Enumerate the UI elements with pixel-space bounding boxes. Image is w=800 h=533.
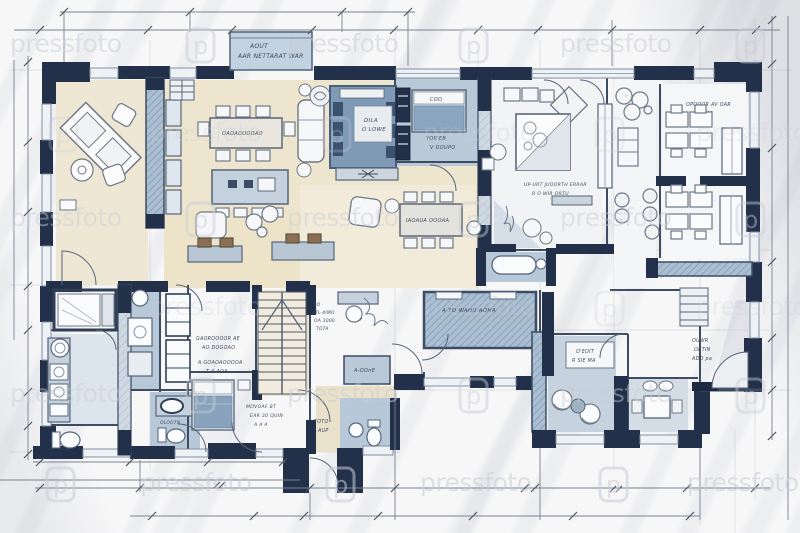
hall-right-label-1: OUWR [692, 338, 709, 344]
watermark-text: pressfoto [10, 379, 122, 408]
guest-pillow-label: COO [430, 97, 442, 103]
watermark-text: pressfoto [287, 379, 399, 408]
master-label-1: UP-URT JUOORTH ERRAR [524, 182, 587, 188]
watermark-logo-letter: p [743, 206, 758, 234]
floor-plan-sheet: A TO WAHU AOHA [0, 0, 800, 533]
desk-note-2: ATL-4IMO [311, 310, 335, 316]
sitting-nook-label-2: R SIE MA [572, 358, 596, 364]
watermark-text: pressfoto [696, 118, 800, 147]
desk-note-4: TOTA [316, 326, 329, 332]
watermark-text: pressfoto [560, 379, 672, 408]
hall-right-label-3: ADO pa [691, 356, 712, 362]
master-label-2: R O WIR ORTU [532, 191, 569, 197]
hall-labels: GAOROOOOR AE AO DOGOAO A GOAOAOOOOA T A … [196, 336, 243, 375]
bedroom-small-label-2: EAR 30 QUIN [250, 413, 283, 419]
watermark-logo-letter: p [193, 206, 208, 234]
watermark-text: pressfoto [287, 29, 399, 58]
bath-left-label: OLOOTN [160, 420, 181, 426]
watermark-logo-letter: p [743, 32, 758, 60]
rug-label-2: O LOWE [362, 127, 386, 133]
watermark-text: pressfoto [423, 292, 535, 321]
watermark-logo-letter: p [56, 121, 71, 149]
watermark-logo-letter: p [466, 382, 481, 410]
bathroom-bottom-left [52, 432, 80, 448]
round-chair [310, 86, 330, 106]
closet-label: A-OOnE [353, 368, 376, 374]
sauna-room [54, 290, 116, 330]
bedroom-small-label-3: A A A [253, 422, 268, 428]
watermark-text: pressfoto [423, 118, 535, 147]
desk-note-3: OA 3000 [314, 318, 335, 324]
watermark-text: pressfoto [696, 292, 800, 321]
watermark-text: pressfoto [420, 468, 532, 497]
watermark-logo-letter: p [53, 471, 68, 499]
watermark-logo-letter: p [743, 382, 758, 410]
office-label-1: OPQOOR AV OAR [686, 102, 731, 108]
watermark-text: pressfoto [687, 468, 799, 497]
watermark-text: pressfoto [560, 203, 672, 232]
rug-label-1: DILA [364, 118, 378, 124]
top-steps [170, 80, 194, 100]
watermark-text: pressfoto [150, 292, 262, 321]
hall-label-1: GAOROOOOR AE [196, 336, 241, 342]
watermark-logo-letter: p [602, 295, 617, 323]
hall-label-2: AO DOGOAO [201, 345, 235, 351]
corridor-desk: LO ATL-4IMO OA 3000 TOTA [311, 292, 388, 332]
hall-right-label-2: ORTIN [694, 347, 711, 353]
top-windows [90, 68, 714, 78]
watermark-logo-letter: p [329, 121, 344, 149]
watermark-text: pressfoto [10, 203, 122, 232]
watermark-text: pressfoto [10, 29, 122, 58]
watermark-logo-letter: p [602, 121, 617, 149]
hall-label-4: T A AOA [206, 369, 228, 375]
watermark-text: pressfoto [140, 468, 252, 497]
watermark-logo-letter: p [193, 32, 208, 60]
desk-note-1: LO [314, 302, 321, 308]
watermark-logo-letter: p [193, 382, 208, 410]
bedroom-small-label-1: MOVOAF BT [246, 404, 277, 410]
watermark-text: pressfoto [560, 29, 672, 58]
entry-bath-label-2: AUP [317, 428, 329, 434]
dining-table-2-label: IAOAUA OOOAA [406, 218, 449, 224]
title-line1: AOUT [249, 43, 269, 50]
watermark-text: pressfoto [287, 203, 399, 232]
watermark-logo-letter: p [606, 471, 621, 499]
floor-plan-canvas: A TO WAHU AOHA [0, 0, 800, 533]
hall-label-3: A GOAOAOOOOA [197, 360, 243, 366]
watermark-text: pressfoto [150, 118, 262, 147]
entry-bath-label-1: TOTO [314, 419, 329, 425]
watermark-logo-letter: p [466, 32, 481, 60]
sofa [298, 100, 324, 162]
sitting-nook-label-1: O'EOIT [576, 349, 595, 355]
divider-wall [146, 78, 164, 228]
tv-console [336, 168, 398, 180]
watermark-logo-letter: p [466, 206, 481, 234]
watermark-logo-letter: p [333, 471, 348, 499]
